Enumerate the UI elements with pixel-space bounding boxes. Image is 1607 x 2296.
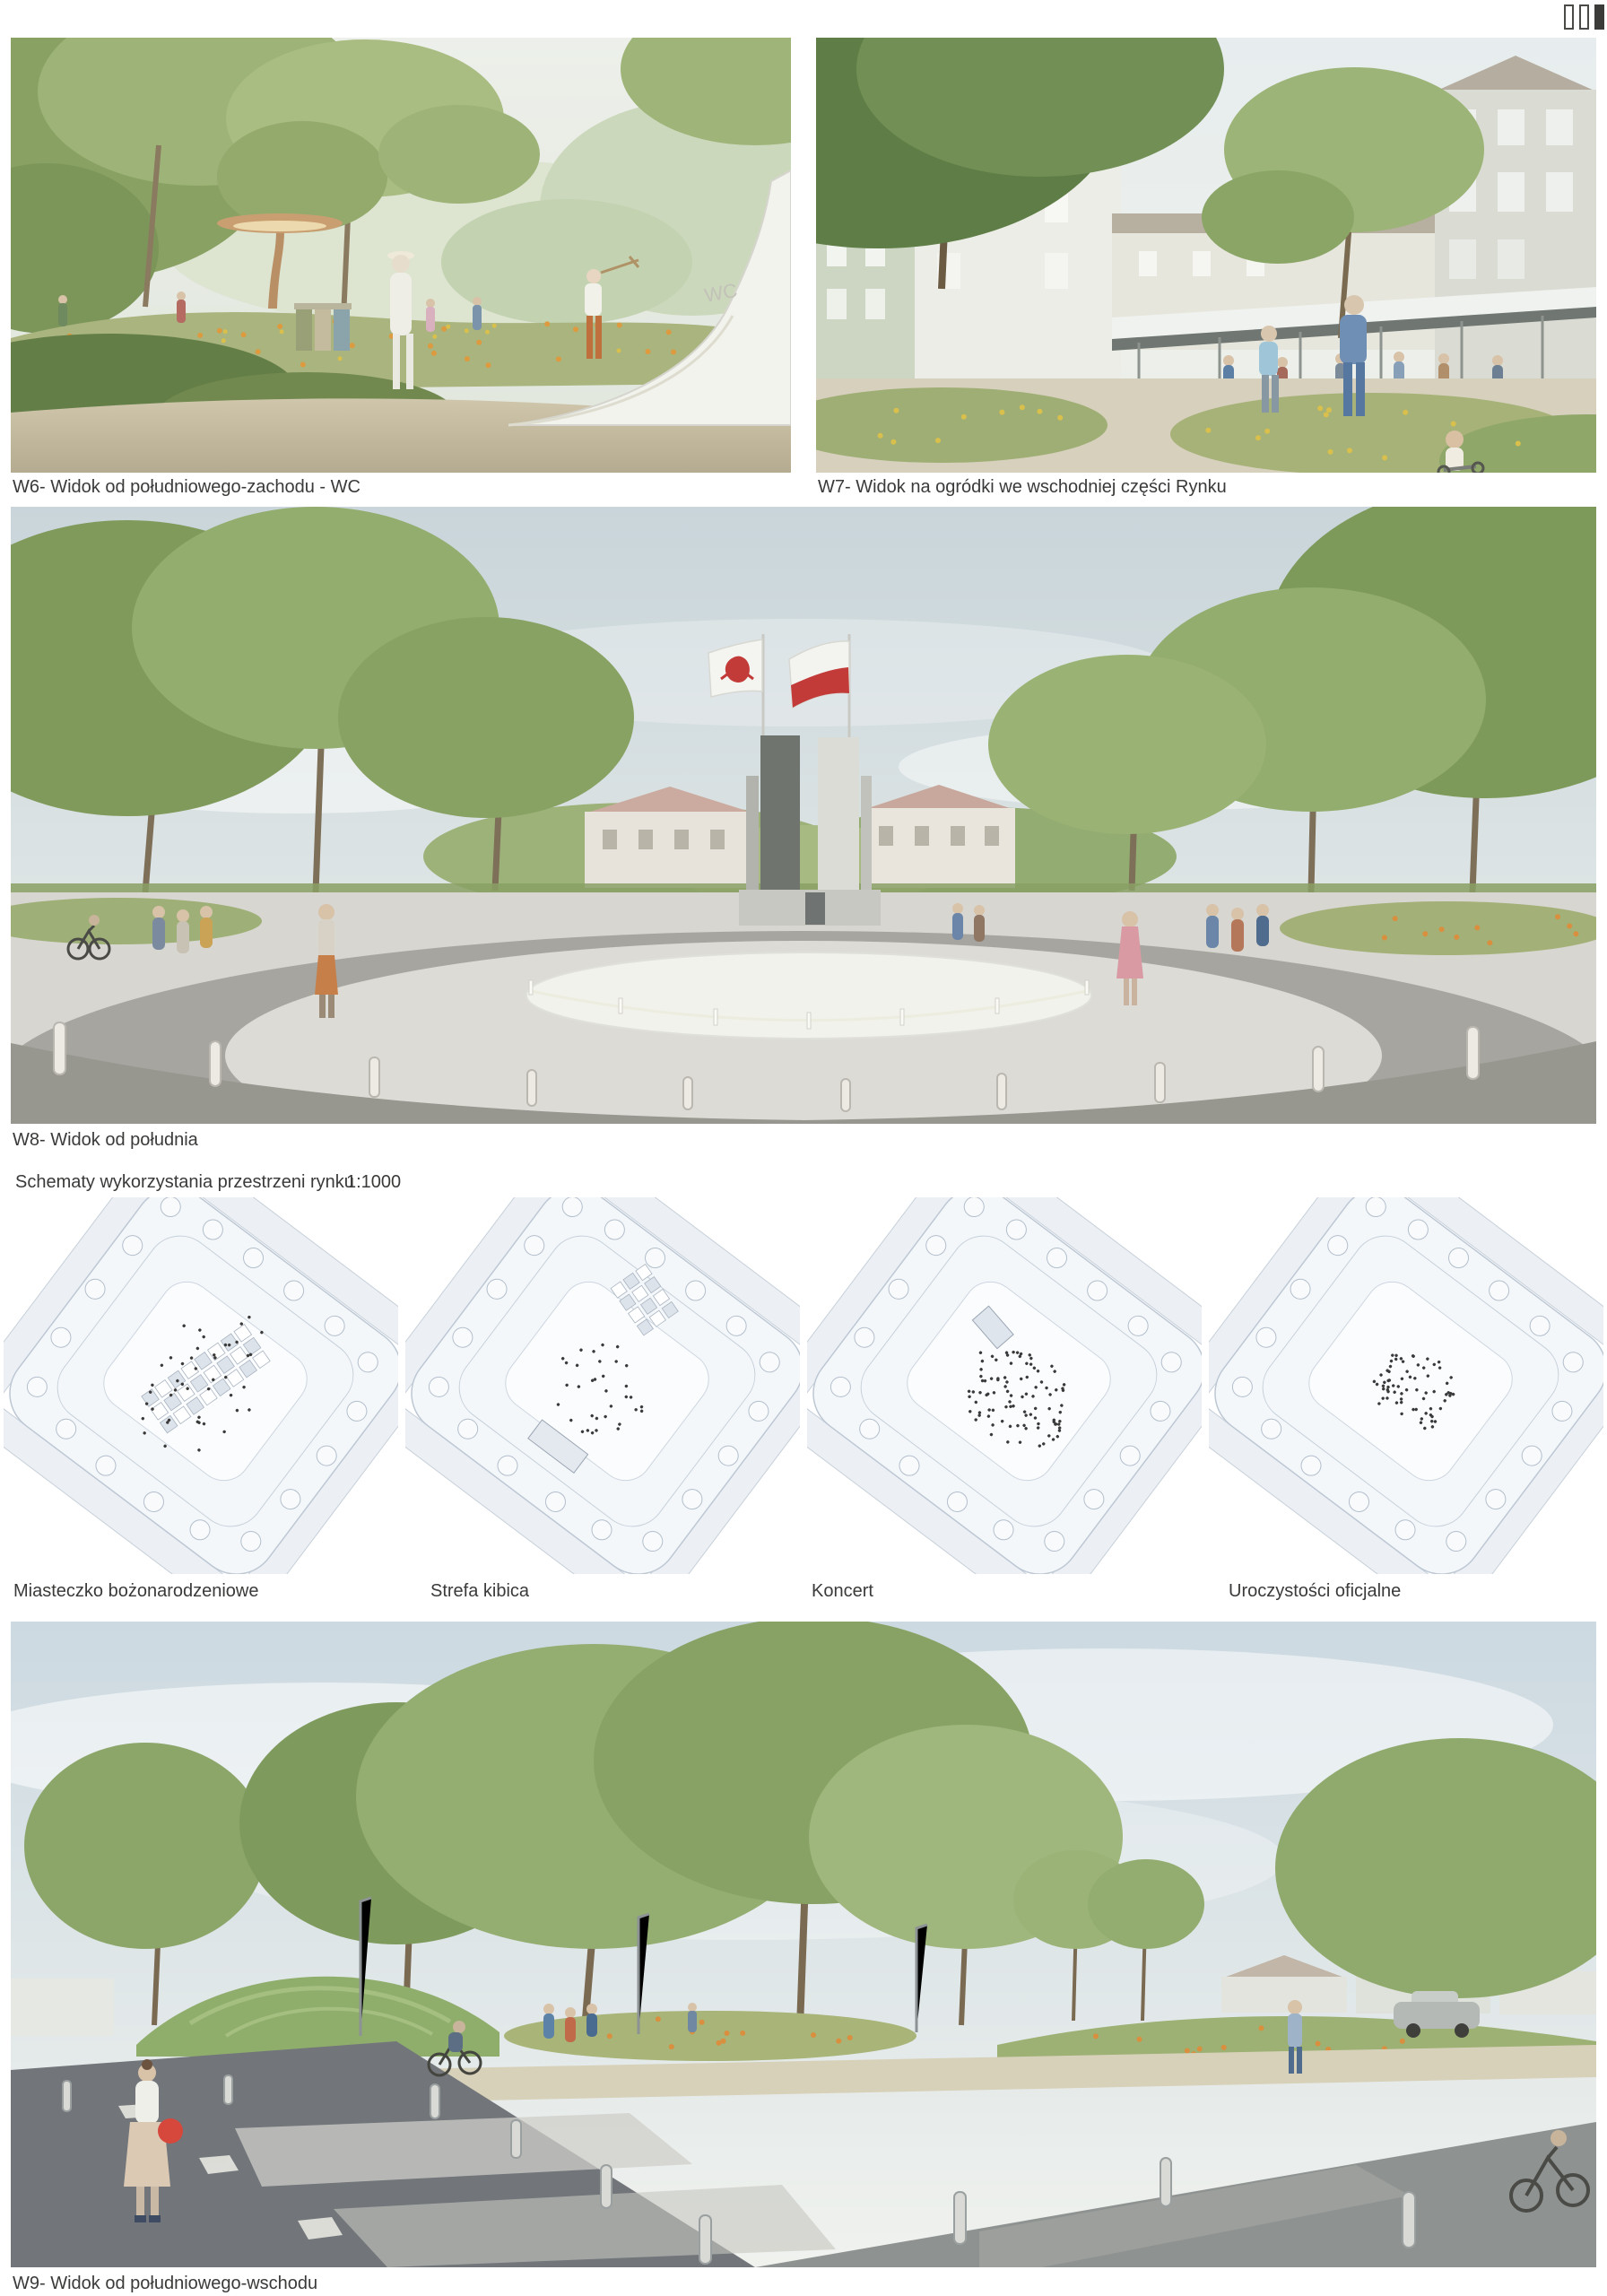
- monument-slab-left-small: [746, 776, 759, 891]
- render-w9-scene: [11, 1622, 1596, 2267]
- render-w6-scene: WC: [11, 38, 791, 473]
- white-oval-with-fence: [526, 952, 1091, 1039]
- caption-scheme-3: Koncert: [812, 1580, 873, 1603]
- plan-diagram: [405, 1197, 800, 1574]
- competition-board: WC: [0, 0, 1607, 2296]
- caption-scheme-1: Miasteczko bożonarodzeniowe: [13, 1580, 259, 1603]
- render-w7-east-gardens-view: [816, 38, 1596, 473]
- caption-w8: W8- Widok od południa: [13, 1129, 198, 1152]
- pedestal-inscription: [805, 892, 825, 925]
- diagram-official-ceremonies: [1209, 1197, 1603, 1574]
- page-box-3-active: [1594, 4, 1604, 30]
- page-box-1: [1564, 4, 1574, 30]
- diagram-christmas-market: [4, 1197, 398, 1574]
- caption-w7: W7- Widok na ogródki we wschodniej częśc…: [818, 476, 1227, 499]
- monument-slab-light: [818, 737, 859, 891]
- schemes-scale-label: 1:1000: [346, 1172, 401, 1193]
- caption-w9: W9- Widok od południowego-wschodu: [13, 2273, 317, 2295]
- plan-diagram: [1209, 1197, 1603, 1574]
- render-w8-south-view-monument: [11, 507, 1596, 1124]
- page-indicator: [1564, 4, 1604, 30]
- caption-scheme-4: Uroczystości oficjalne: [1229, 1580, 1401, 1603]
- caption-scheme-2: Strefa kibica: [430, 1580, 529, 1603]
- monument-slab-dark: [760, 735, 800, 891]
- plan-diagram: [807, 1197, 1202, 1574]
- monument-slab-right-small: [861, 776, 872, 891]
- render-w9-southeast-view: [11, 1622, 1596, 2267]
- schemes-section-title: Schematy wykorzystania przestrzeni rynku: [15, 1172, 354, 1193]
- diagram-fan-zone: [405, 1197, 800, 1574]
- caption-w6: W6- Widok od południowego-zachodu - WC: [13, 476, 360, 499]
- recycling-bins: [294, 303, 352, 351]
- plan-diagram: [4, 1197, 398, 1574]
- diagram-concert: [807, 1197, 1202, 1574]
- render-w6-southwest-view-wc: WC: [11, 38, 791, 473]
- render-w8-scene: [11, 507, 1596, 1124]
- render-w7-scene: [816, 38, 1596, 473]
- page-box-2: [1579, 4, 1589, 30]
